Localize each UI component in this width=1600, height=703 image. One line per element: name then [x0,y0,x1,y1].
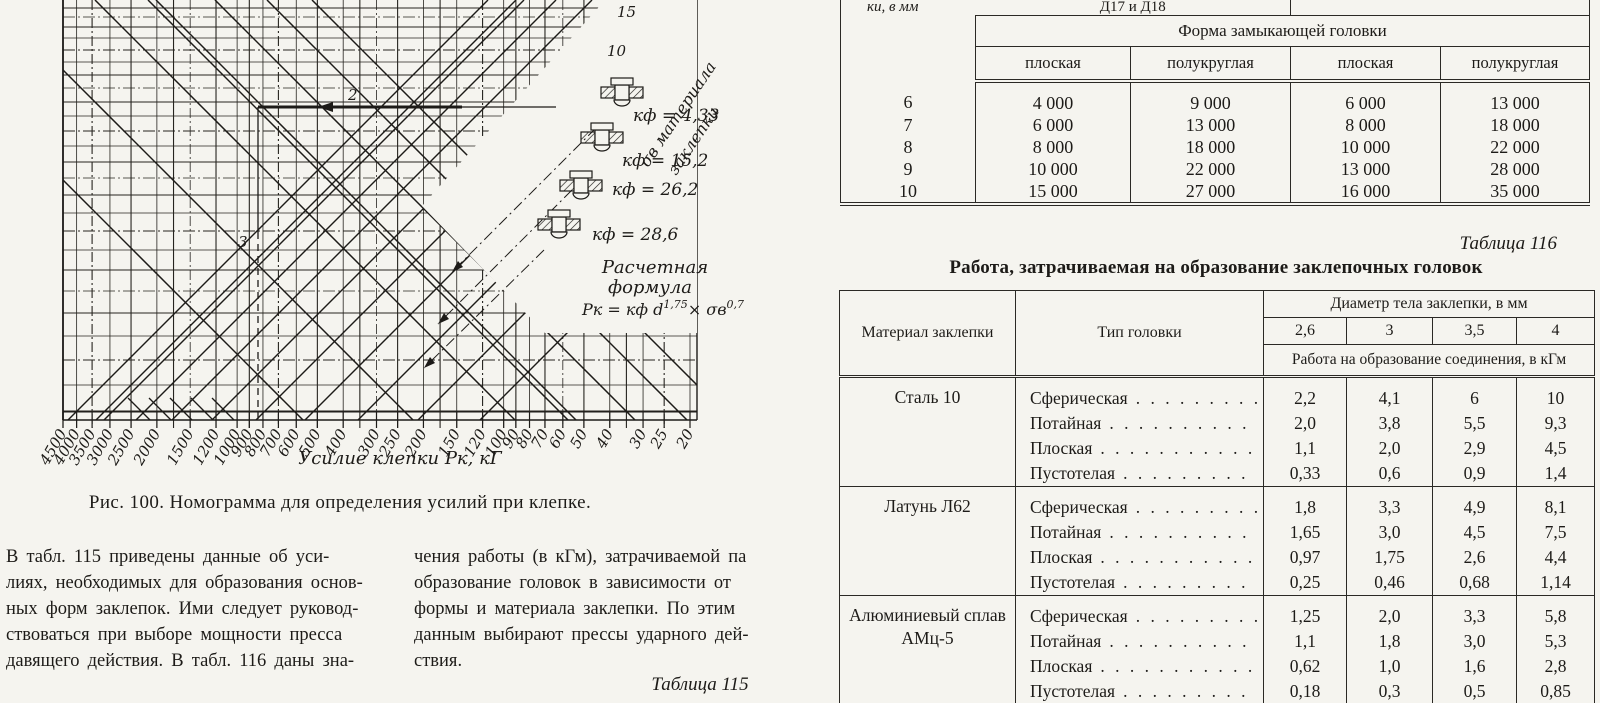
x-axis-title: Усилие клепки Рк, кГ [298,448,503,469]
table-cell: 0,5 [1433,679,1517,703]
kf-label-3: кф = 26,2 [612,180,698,200]
table-cell: 13 000 [1441,81,1590,114]
table-cell: 1,1 [1264,629,1347,654]
svg-text:40: 40 [592,426,618,453]
svg-text:2000: 2000 [129,426,164,469]
table-cell: 28 000 [1441,158,1590,180]
subheader-flat: плоская [1291,47,1441,82]
table-cell: 10 000 [1291,136,1441,158]
table-cell: 2,9 [1433,436,1517,461]
dot-leader [1123,463,1257,484]
dot-leader [1109,413,1257,434]
table-cell: 22 000 [1441,136,1590,158]
head-type-column-header: Тип головки [1016,291,1264,377]
dot-leader [1109,631,1257,652]
table-cell: 1,1 [1264,436,1347,461]
table-cell: 2,0 [1347,436,1433,461]
head-type-cell: Плоская [1016,436,1264,461]
table-cell: 9,3 [1517,411,1595,436]
diameter-cell: 8 [841,136,976,158]
table-cell: 2,0 [1264,411,1347,436]
head-type-cell: Потайная [1016,520,1264,545]
head-type-cell: Потайная [1016,411,1264,436]
table-cell: 4,9 [1433,487,1517,521]
head-type-cell: Сферическая [1016,596,1264,630]
table-cell: 6 000 [1291,81,1441,114]
table-cell: 10 [1517,377,1595,412]
dot-leader [1100,438,1257,459]
table-cell: 3,0 [1433,629,1517,654]
diameter-cell: 9 [841,158,976,180]
head-type-cell: Сферическая [1016,377,1264,412]
table-cell: 0,62 [1264,654,1347,679]
table-cell: 0,18 [1264,679,1347,703]
head-type-cell: Пустотелая [1016,679,1264,703]
table115-reference-label: Таблица 115 [600,674,800,696]
table116-label: Таблица 116 [1250,233,1557,255]
table-cell: 10 000 [976,158,1131,180]
table-cell: 1,65 [1264,520,1347,545]
table-cell: 3,3 [1433,596,1517,630]
diameter-value-header: 3,5 [1433,318,1517,345]
material-cell: Алюминиевый сплав АМц-5 [840,596,1016,703]
head-type-cell: Пустотелая [1016,461,1264,487]
diameter-value-header: 4 [1517,318,1595,345]
table-cell: 35 000 [1441,180,1590,204]
table-cell: 0,85 [1517,679,1595,703]
table-cell: 5,3 [1517,629,1595,654]
table-cell: 2,0 [1347,596,1433,630]
table-row: 9 10 000 22 000 13 000 28 000 [841,158,1590,180]
table-cell: 1,4 [1517,461,1595,487]
table-cell: 1,6 [1433,654,1517,679]
formula-title-line1: Расчетная [601,257,708,278]
head-type-cell: Пустотелая [1016,570,1264,596]
table-cell: 4 000 [976,81,1131,114]
alloy-group-header-cropped [1291,0,1590,16]
table-cell: 22 000 [1131,158,1291,180]
head-type-cell: Сферическая [1016,487,1264,521]
table-cell: 8 000 [1291,114,1441,136]
dot-leader [1123,572,1257,593]
figure-caption: Рис. 100. Номограмма для определения уси… [0,492,680,514]
table-cell: 8 000 [976,136,1131,158]
diameter-value-header: 3 [1347,318,1433,345]
diameter-value-header: 2,6 [1264,318,1347,345]
scanned-book-page: 2 3 15 10 σв материала заклепки кф = 4,3… [0,0,1600,703]
table-cell: 1,14 [1517,570,1595,596]
table-cell: 13 000 [1291,158,1441,180]
alloy-group-header: Д17 и Д18 [976,0,1291,16]
material-column-header: Материал заклепки [840,291,1016,377]
rivet-force-table: ки, в мм Д17 и Д18 Форма замыкающей голо… [840,0,1590,206]
table-cell: 1,8 [1347,629,1433,654]
head-type-cell: Плоская [1016,654,1264,679]
formula: Рк = кф d1,75× σв0,7 [581,298,744,319]
work-table: Материал заклепки Тип головки Диаметр те… [839,290,1595,703]
dot-leader [1136,606,1257,627]
diameter-cell: 6 [841,81,976,114]
table-cell: 13 000 [1131,114,1291,136]
work-span-header: Работа на образование соединения, в кГм [1264,345,1595,377]
svg-text:30: 30 [625,426,650,452]
table-cell: 0,6 [1347,461,1433,487]
trace-label-3: 3 [238,233,248,251]
svg-text:20: 20 [672,426,698,453]
kf-label-4: кф = 28,6 [592,225,679,245]
table116-title: Работа, затрачиваемая на образование зак… [840,257,1592,279]
table-cell: 1,8 [1264,487,1347,521]
table-cell: 0,33 [1264,461,1347,487]
table-cell: 18 000 [1131,136,1291,158]
table-cell: 3,3 [1347,487,1433,521]
table-cell: 3,0 [1347,520,1433,545]
table-cell: 3,8 [1347,411,1433,436]
table-cell: 2,6 [1433,545,1517,570]
diameter-cell: 10 [841,180,976,204]
formula-title-line2: формула [608,277,692,298]
table-cell: 6 [1433,377,1517,412]
table-cell: 2,2 [1264,377,1347,412]
nomogram-svg: 2 3 15 10 σв материала заклепки кф = 4,3… [0,0,760,475]
table-cell: 1,75 [1347,545,1433,570]
table-cell: 4,4 [1517,545,1595,570]
table-cell: 0,97 [1264,545,1347,570]
dot-leader [1100,547,1257,568]
table-cell: 7,5 [1517,520,1595,545]
diag-tick-15: 15 [617,3,636,21]
table-row: Алюминиевый сплав АМц-5 Сферическая 1,25… [840,596,1595,630]
subheader-round: полукруглая [1441,47,1590,82]
intro-text-right-column: чения работы (в кГм), затрачиваемой па о… [414,544,800,674]
dot-leader [1136,497,1257,518]
dot-leader [1123,681,1257,702]
table-row: 8 8 000 18 000 10 000 22 000 [841,136,1590,158]
kf-label-2: кф = 15,2 [622,151,708,171]
diameter-span-header: Диаметр тела заклепки, в мм [1264,291,1595,318]
kf-label-1: кф = 4,33 [633,106,719,126]
table-row: Сталь 10 Сферическая 2,2 4,1 6 10 [840,377,1595,412]
table-cell: 5,8 [1517,596,1595,630]
dot-leader [1109,522,1257,543]
nomogram-figure: 2 3 15 10 σв материала заклепки кф = 4,3… [0,0,760,475]
table-cell: 8,1 [1517,487,1595,521]
table-cell: 0,9 [1433,461,1517,487]
table-cell: 5,5 [1433,411,1517,436]
table-cell: 2,8 [1517,654,1595,679]
table-cell: 0,46 [1347,570,1433,596]
dot-leader [1100,656,1257,677]
table-cell: 18 000 [1441,114,1590,136]
subheader-flat: плоская [976,47,1131,82]
table-row: 7 6 000 13 000 8 000 18 000 [841,114,1590,136]
table-cell: 6 000 [976,114,1131,136]
table-row: 6 4 000 9 000 6 000 13 000 [841,81,1590,114]
table-row: Латунь Л62 Сферическая 1,8 3,3 4,9 8,1 [840,487,1595,521]
intro-text-left-column: В табл. 115 приведены данные об уси- лия… [6,544,404,674]
head-type-cell: Потайная [1016,629,1264,654]
head-type-cell: Плоская [1016,545,1264,570]
table-cell: 4,5 [1517,436,1595,461]
table-cell: 27 000 [1131,180,1291,204]
table-cell: 1,25 [1264,596,1347,630]
svg-text:50: 50 [566,426,591,452]
table-cell: 1,0 [1347,654,1433,679]
subheader-round: полукруглая [1131,47,1291,82]
trace-label-2: 2 [347,86,358,104]
table-cell: 0,25 [1264,570,1347,596]
diag-tick-10: 10 [607,42,627,60]
table-cell: 9 000 [1131,81,1291,114]
table-cell: 16 000 [1291,180,1441,204]
table-cell: 0,68 [1433,570,1517,596]
svg-text:25: 25 [646,426,672,452]
table-cell: 15 000 [976,180,1131,204]
table-cell: 0,3 [1347,679,1433,703]
table-cell: 4,1 [1347,377,1433,412]
diameter-column-header-fragment: ки, в мм [841,0,976,81]
dot-leader [1136,388,1257,409]
table-cell: 4,5 [1433,520,1517,545]
material-cell: Сталь 10 [840,377,1016,487]
closing-head-form-header: Форма замыкающей головки [976,16,1590,47]
diameter-cell: 7 [841,114,976,136]
table-row: 10 15 000 27 000 16 000 35 000 [841,180,1590,204]
material-cell: Латунь Л62 [840,487,1016,596]
svg-text:60: 60 [545,426,570,452]
